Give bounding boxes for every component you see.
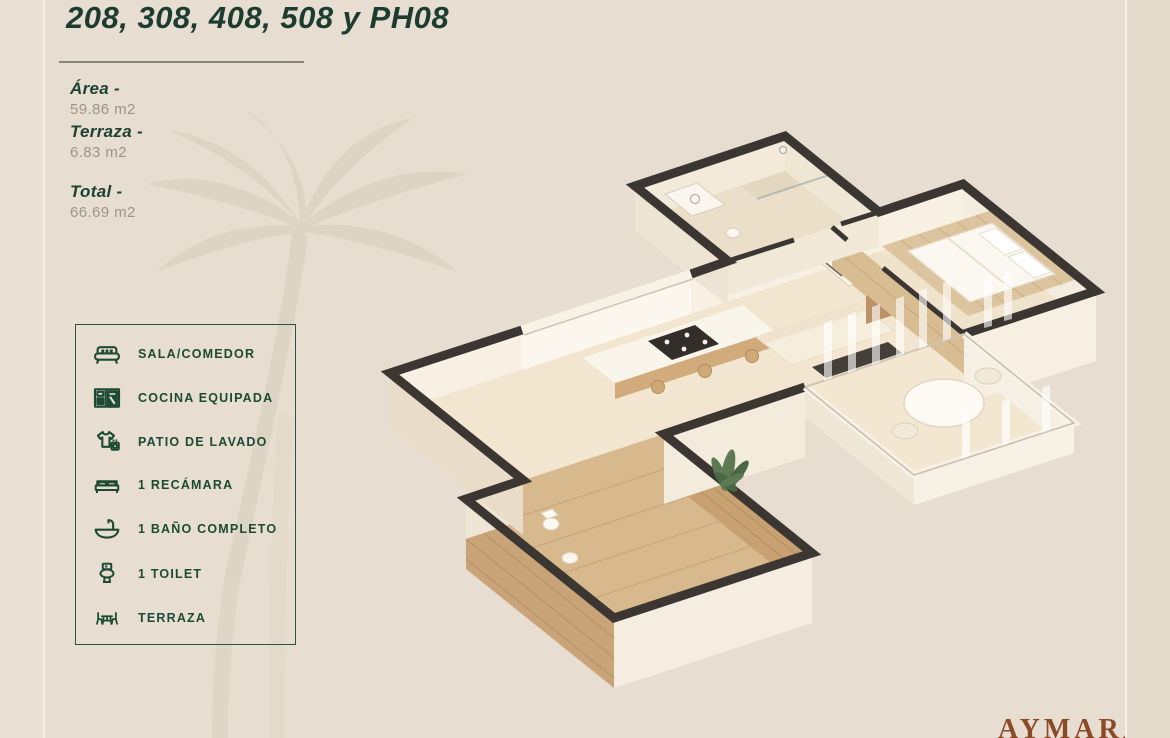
legend-label: 1 TOILET (138, 567, 202, 581)
legend-row: 1 BAÑO COMPLETO (76, 513, 295, 545)
legend-label: COCINA EQUIPADA (138, 391, 273, 405)
toilet-fixture (543, 518, 559, 530)
legend-row: PATIO DE LAVADO (76, 426, 295, 458)
floorplan-3d-render (360, 88, 1105, 738)
sofa-icon (76, 339, 138, 369)
sink-icon (76, 513, 138, 545)
terraza-value: 6.83 m2 (70, 145, 310, 160)
kitchen-icon (76, 382, 138, 414)
specs-block: Área - 59.86 m2 Terraza - 6.83 m2 Total … (70, 80, 310, 226)
legend-label: TERRAZA (138, 611, 206, 625)
page-left-margin (0, 0, 43, 738)
page-title: 208, 308, 408, 508 y PH08 (66, 0, 449, 36)
bed-icon (76, 470, 138, 500)
legend-box: SALA/COMEDOR COCINA EQUIPADA (75, 324, 296, 645)
small-sink (562, 553, 578, 564)
area-value: 59.86 m2 (70, 102, 310, 117)
terraza-label: Terraza - (70, 123, 310, 140)
brand-logo: AYMARA (998, 716, 1138, 738)
brochure-page: 208, 308, 408, 508 y PH08 Área - 59.86 m… (0, 0, 1170, 738)
total-label: Total - (70, 183, 310, 200)
legend-label: SALA/COMEDOR (138, 347, 255, 361)
legend-row: 1 RECÁMARA (76, 470, 295, 500)
laundry-icon (76, 426, 138, 458)
title-divider (59, 61, 304, 63)
shower-head (780, 147, 787, 154)
toilet-icon (76, 557, 138, 591)
terrace-icon (76, 604, 138, 632)
bathroom-sink (726, 228, 740, 238)
legend-row: COCINA EQUIPADA (76, 382, 295, 414)
legend-row: SALA/COMEDOR (76, 339, 295, 369)
page-left-fold-line (43, 0, 45, 738)
legend-label: 1 RECÁMARA (138, 478, 233, 492)
area-label: Área - (70, 80, 310, 97)
legend-label: 1 BAÑO COMPLETO (138, 522, 277, 536)
page-right-margin (1127, 0, 1170, 738)
page-right-fold-line (1125, 0, 1127, 738)
total-value: 66.69 m2 (70, 205, 310, 220)
legend-label: PATIO DE LAVADO (138, 435, 268, 449)
legend-row: 1 TOILET (76, 557, 295, 591)
legend-row: TERRAZA (76, 604, 295, 632)
round-table (904, 379, 984, 427)
